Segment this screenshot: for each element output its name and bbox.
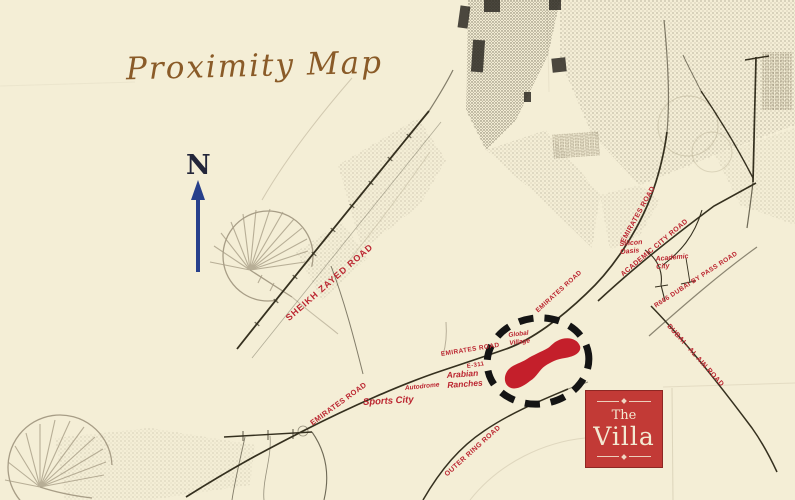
place-label-academic-city: Academic City: [655, 253, 689, 273]
place-label-global-village: Global Village: [508, 330, 530, 348]
map-canvas: [0, 0, 795, 500]
ornament-line: [629, 456, 651, 457]
compass-north-label: N: [186, 150, 211, 181]
ornament-line: [597, 401, 619, 402]
logo-ornament-bottom: [597, 455, 651, 459]
place-label-arabian-ranches: Arabian Ranches: [446, 368, 483, 391]
logo-text-the: The: [612, 409, 637, 423]
page-title: Proximity Map: [126, 45, 384, 88]
logo-ornament-top: [597, 399, 651, 403]
ornament-line: [597, 456, 619, 457]
ornament-diamond-icon: [621, 454, 627, 460]
the-villa-logo: The Villa: [585, 390, 663, 468]
place-label-silicon-oasis: Silicon Oasis: [619, 239, 643, 258]
ornament-line: [629, 401, 651, 402]
ornament-diamond-icon: [621, 398, 627, 404]
logo-text-villa: Villa: [593, 423, 655, 451]
north-arrow-icon: [191, 180, 205, 272]
proximity-map: Proximity Map N SHEIKH ZAYED ROAD EMIRAT…: [0, 0, 795, 500]
villa-site-highlight: [482, 311, 595, 410]
